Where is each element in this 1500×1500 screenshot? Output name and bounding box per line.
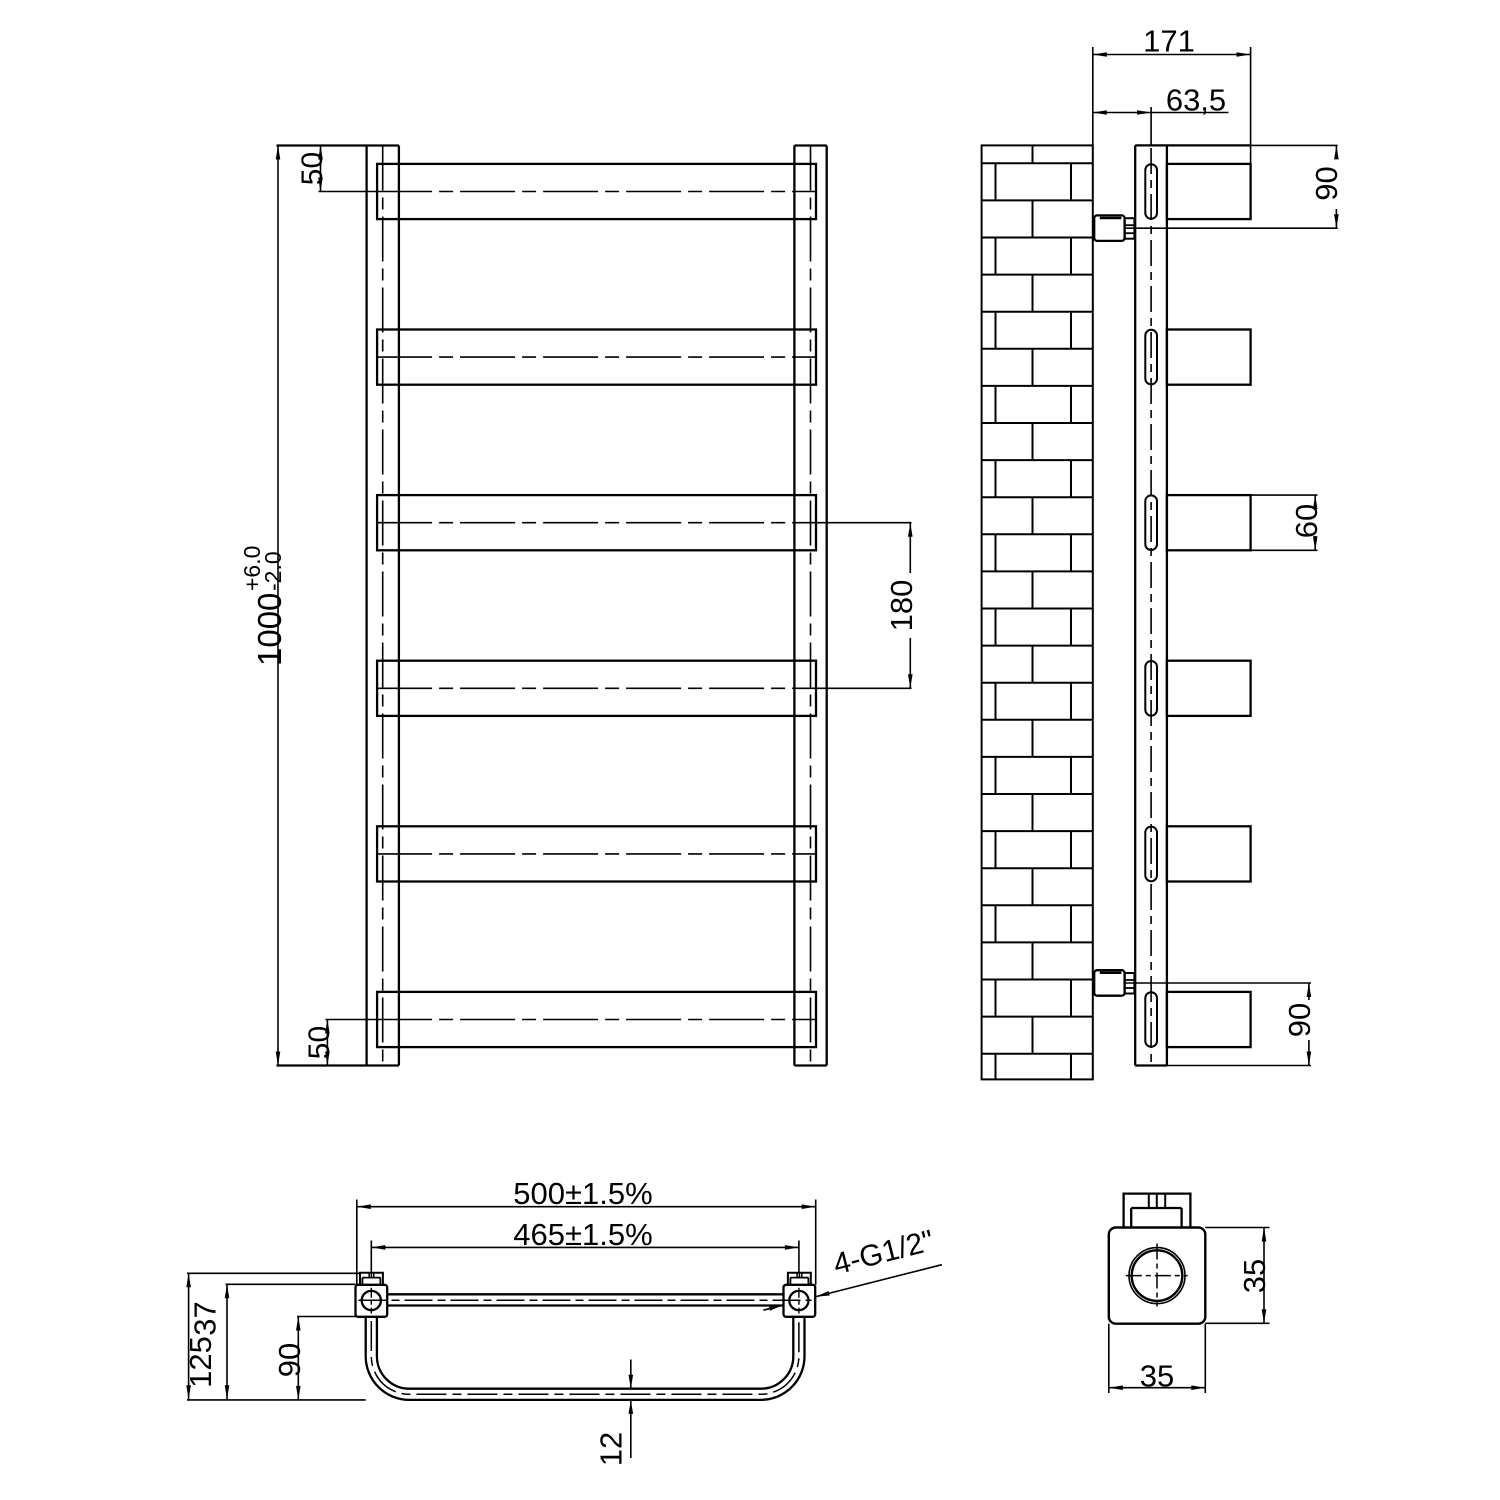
- svg-text:90: 90: [1282, 1003, 1317, 1037]
- svg-text:35: 35: [1140, 1359, 1174, 1394]
- svg-text:1000: 1000: [251, 593, 288, 666]
- svg-text:465±1.5%: 465±1.5%: [513, 1217, 652, 1252]
- svg-text:90: 90: [1309, 166, 1344, 200]
- svg-text:90: 90: [272, 1343, 307, 1377]
- svg-text:60: 60: [1289, 504, 1324, 538]
- svg-text:63,5: 63,5: [1166, 83, 1226, 118]
- svg-text:180: 180: [884, 580, 919, 632]
- svg-text:50: 50: [303, 1026, 336, 1059]
- svg-text:500±1.5%: 500±1.5%: [513, 1176, 652, 1211]
- svg-text:37: 37: [188, 1301, 223, 1335]
- svg-text:171: 171: [1143, 24, 1195, 59]
- svg-text:12: 12: [594, 1432, 629, 1466]
- svg-text:-2.0: -2.0: [260, 551, 286, 591]
- svg-text:125: 125: [183, 1336, 218, 1388]
- svg-text:50: 50: [296, 152, 329, 185]
- svg-text:35: 35: [1237, 1259, 1272, 1293]
